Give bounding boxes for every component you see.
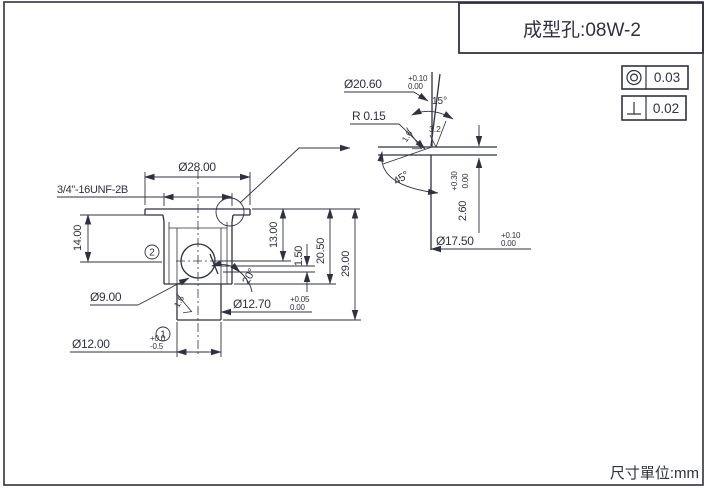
svg-text:1.6: 1.6 bbox=[172, 294, 187, 309]
svg-text:1.50: 1.50 bbox=[293, 246, 305, 266]
svg-text:3/4"-16UNF-2B: 3/4"-16UNF-2B bbox=[57, 184, 128, 196]
title-block: 成型孔:08W-2 bbox=[459, 3, 703, 53]
svg-text:Ø20.60: Ø20.60 bbox=[344, 77, 382, 91]
svg-text:3.2: 3.2 bbox=[429, 124, 441, 134]
roughness-mark-fine: 1.6 bbox=[398, 128, 426, 153]
perpendicularity-icon bbox=[627, 102, 641, 114]
svg-text:1: 1 bbox=[160, 330, 166, 341]
svg-text:-0.5: -0.5 bbox=[150, 342, 164, 351]
unit-label: 尺寸單位:mm bbox=[610, 465, 699, 482]
svg-text:2.60: 2.60 bbox=[457, 201, 469, 221]
svg-text:15°: 15° bbox=[432, 96, 447, 107]
svg-text:Ø9.00: Ø9.00 bbox=[90, 290, 122, 304]
main-view: Ø28.00 3/4"-16UNF-2B 14.00 13.00 1.50 bbox=[57, 148, 361, 357]
svg-text:20.50: 20.50 bbox=[315, 238, 327, 264]
tolerance-row-concentricity: 0.03 bbox=[622, 66, 688, 89]
svg-text:Ø28.00: Ø28.00 bbox=[178, 160, 216, 174]
svg-text:14.00: 14.00 bbox=[72, 225, 84, 251]
detail-view: Ø20.60 +0.10 0.00 R 0.15 15° 3.2 1.6 bbox=[344, 72, 531, 250]
svg-text:1.6: 1.6 bbox=[400, 128, 415, 144]
dim-chamfer-angle: 45° bbox=[382, 152, 438, 193]
detail-circle bbox=[216, 198, 244, 226]
concentricity-icon bbox=[627, 71, 641, 85]
svg-text:Ø17.50: Ø17.50 bbox=[436, 234, 474, 248]
drawing-canvas: 成型孔:08W-2 0.03 0.02 bbox=[0, 0, 706, 490]
dim-height-13: 13.00 bbox=[220, 209, 360, 261]
tolerance-table: 0.03 0.02 bbox=[622, 66, 688, 120]
drawing-title: 成型孔:08W-2 bbox=[523, 19, 641, 41]
tolerance-value: 0.03 bbox=[654, 70, 680, 85]
svg-text:0.00: 0.00 bbox=[501, 239, 517, 248]
svg-text:0.00: 0.00 bbox=[461, 173, 470, 189]
page-border bbox=[4, 2, 703, 485]
svg-text:0.00: 0.00 bbox=[290, 303, 306, 312]
svg-text:29.00: 29.00 bbox=[340, 251, 352, 277]
svg-text:Ø12.70: Ø12.70 bbox=[233, 297, 271, 311]
svg-text:0.00: 0.00 bbox=[408, 82, 424, 91]
roughness-mark-stem: 1.6 bbox=[170, 293, 196, 316]
tolerance-value: 0.02 bbox=[653, 101, 679, 116]
svg-text:20°: 20° bbox=[240, 267, 258, 287]
svg-text:+0.30: +0.30 bbox=[450, 171, 459, 191]
balloon-2: 2 bbox=[145, 245, 159, 259]
svg-text:2: 2 bbox=[149, 248, 155, 259]
dim-depth: 2.60 +0.30 0.00 bbox=[450, 125, 479, 233]
dim-radius: R 0.15 bbox=[350, 109, 425, 149]
svg-text:Ø12.00: Ø12.00 bbox=[72, 337, 110, 351]
tolerance-row-perpendicularity: 0.02 bbox=[622, 96, 686, 120]
dim-bore-dia: Ø20.60 +0.10 0.00 bbox=[344, 74, 428, 101]
dim-stem-dia: Ø12.70 +0.05 0.00 bbox=[221, 295, 312, 312]
svg-text:13.00: 13.00 bbox=[268, 222, 280, 248]
dim-thread-spec: 3/4"-16UNF-2B bbox=[57, 184, 232, 206]
svg-text:45°: 45° bbox=[392, 169, 412, 188]
dim-seat-angle: 20° bbox=[212, 264, 258, 292]
dim-seat-dia: Ø17.50 +0.10 0.00 bbox=[431, 231, 531, 249]
svg-text:R 0.15: R 0.15 bbox=[352, 109, 386, 123]
drawing-sheet: 成型孔:08W-2 0.03 0.02 bbox=[0, 0, 706, 490]
